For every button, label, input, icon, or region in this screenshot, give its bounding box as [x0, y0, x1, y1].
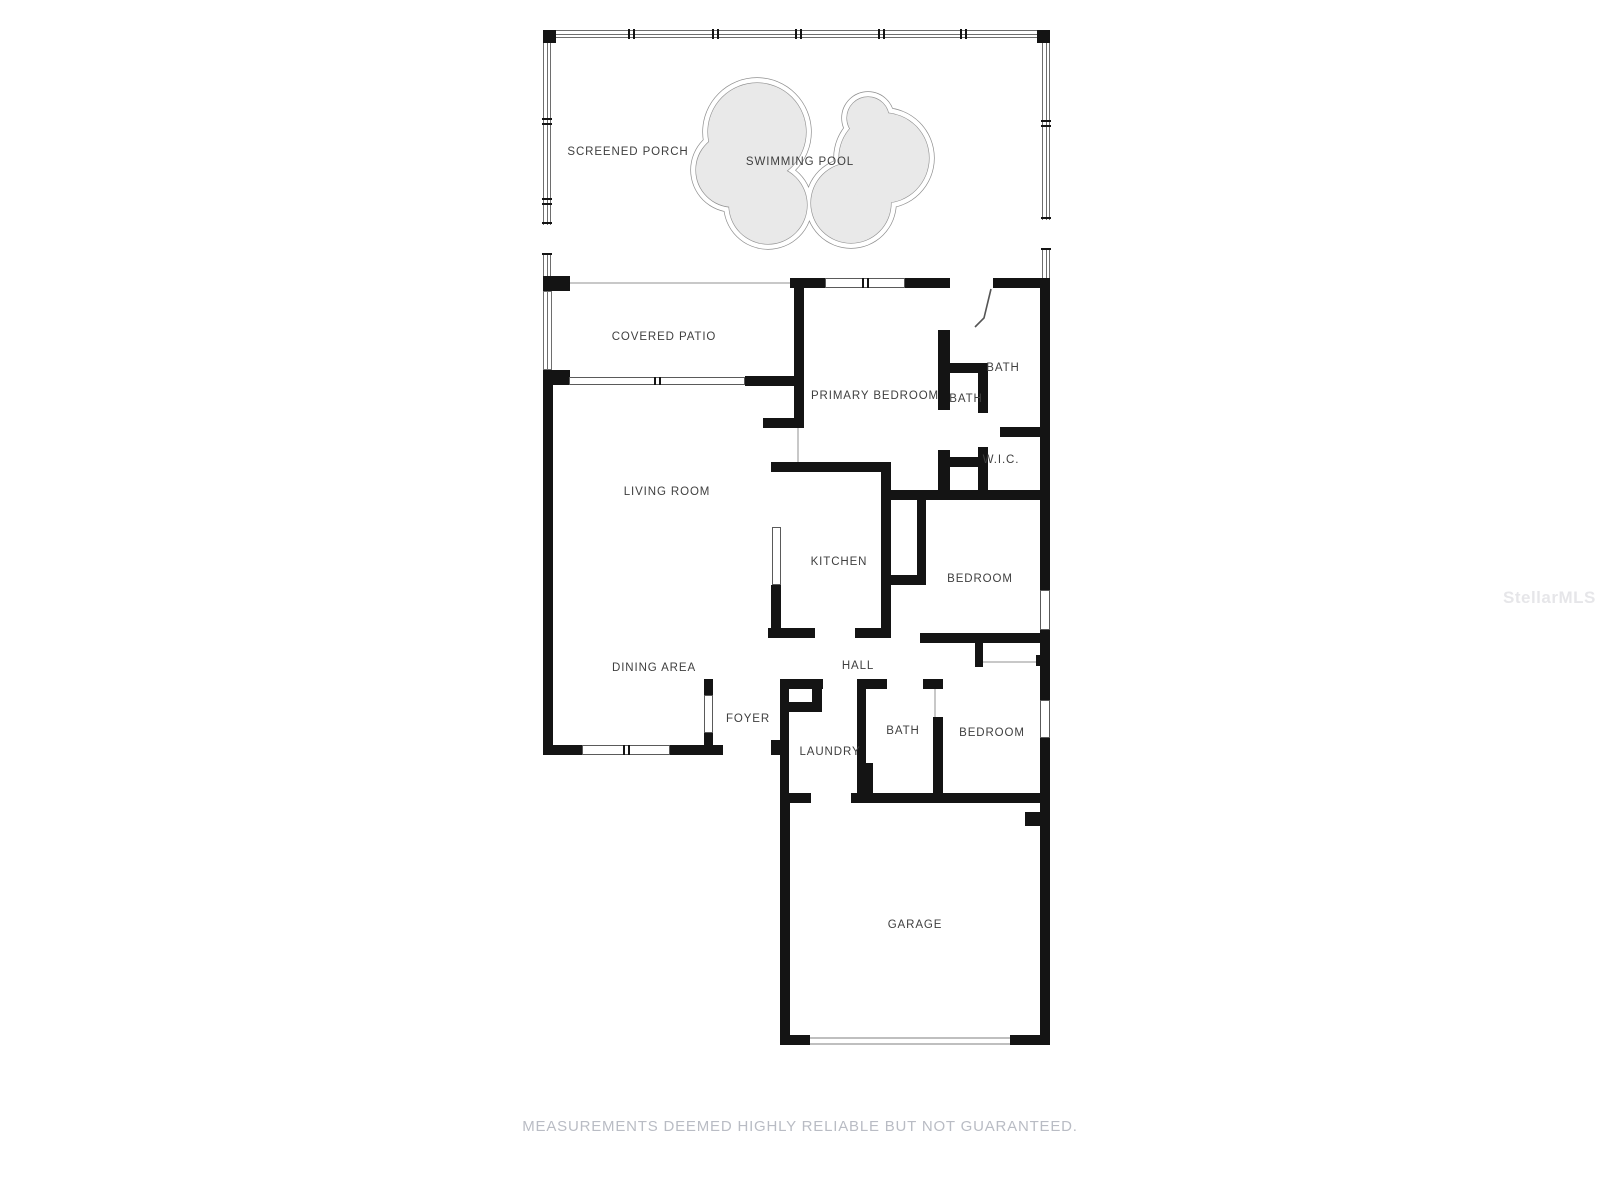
wall-segment: [938, 363, 988, 373]
screen-mullion-tick: [542, 118, 552, 120]
wall-segment: [1040, 738, 1050, 1045]
wall-segment: [891, 575, 920, 585]
wall-segment: [923, 679, 943, 689]
wall-segment: [905, 278, 950, 288]
foyer-sidelight-window: [704, 695, 713, 733]
screen-wall-left-lower: [543, 255, 551, 278]
wall-segment: [704, 733, 713, 755]
window-mullion-tick: [654, 377, 656, 385]
closet-end-post: [1036, 655, 1050, 666]
window-mullion-tick: [867, 278, 869, 288]
window-mullion-tick: [628, 745, 630, 755]
window-mullion-tick: [623, 745, 625, 755]
screen-mullion-tick: [883, 29, 885, 39]
screen-mullion-tick: [878, 29, 880, 39]
garage-interior-post: [1025, 812, 1040, 826]
patio-screen-window: [543, 291, 552, 370]
patio-slider-door: [569, 377, 745, 385]
screen-mullion-tick: [542, 222, 552, 224]
wall-segment: [857, 679, 887, 689]
screen-mullion-tick: [965, 29, 967, 39]
wall-segment: [938, 457, 985, 467]
room-label-screened-porch: SCREENED PORCH: [567, 146, 688, 158]
wall-segment: [851, 793, 1050, 803]
wall-segment: [857, 763, 873, 793]
room-label-foyer: FOYER: [726, 713, 770, 725]
wall-segment: [1010, 1035, 1050, 1045]
screen-mullion-tick: [800, 29, 802, 39]
wall-segment: [768, 628, 815, 638]
window: [1040, 700, 1050, 738]
wall-segment: [881, 472, 891, 638]
room-label-hall: HALL: [842, 660, 874, 672]
stellar-mls-watermark: StellarMLS: [1503, 588, 1596, 608]
wall-segment: [975, 637, 983, 667]
wall-segment: [794, 288, 804, 418]
room-label-kitchen: KITCHEN: [811, 556, 868, 568]
room-label-dining-area: DINING AREA: [612, 662, 696, 674]
screen-mullion-tick: [712, 29, 714, 39]
disclaimer-text: MEASUREMENTS DEEMED HIGHLY RELIABLE BUT …: [522, 1118, 1078, 1135]
screen-mullion-tick: [542, 198, 552, 200]
wall-segment: [704, 679, 713, 695]
room-label-wic: W.I.C.: [983, 454, 1020, 466]
wall-segment: [780, 1035, 810, 1045]
room-label-living-room: LIVING ROOM: [624, 486, 711, 498]
floor-plan-canvas: SCREENED PORCH SWIMMING POOL COVERED PAT…: [0, 0, 1600, 1200]
screen-wall-right-upper: [1042, 38, 1050, 220]
plan-lines-layer: [0, 0, 1600, 1200]
screen-mullion-tick: [795, 29, 797, 39]
screen-mullion-tick: [1041, 217, 1051, 219]
screen-mullion-tick: [1041, 125, 1051, 127]
window-mullion-tick: [862, 278, 864, 288]
wall-segment: [745, 376, 800, 386]
room-label-garage: GARAGE: [888, 919, 943, 931]
screen-wall-right-lower: [1042, 250, 1050, 278]
room-label-swimming-pool: SWIMMING POOL: [746, 156, 854, 168]
wall-segment: [780, 793, 790, 1045]
screen-mullion-tick: [1041, 120, 1051, 122]
porch-corner-post: [543, 30, 556, 43]
wall-segment: [917, 500, 926, 585]
wall-segment: [1000, 427, 1040, 437]
wall-segment: [771, 462, 891, 472]
screen-mullion-tick: [960, 29, 962, 39]
wall-segment: [920, 633, 1050, 643]
window: [582, 745, 670, 755]
patio-corner-post: [543, 276, 570, 291]
wall-segment: [891, 490, 1040, 500]
room-label-bath-primary: BATH: [949, 393, 982, 405]
screen-mullion-tick: [717, 29, 719, 39]
wall-segment: [670, 745, 723, 755]
window-mullion-tick: [659, 377, 661, 385]
room-label-bedroom-middle: BEDROOM: [947, 573, 1013, 585]
wall-segment: [790, 278, 825, 288]
screen-mullion-tick: [542, 253, 552, 255]
screen-mullion-tick: [542, 203, 552, 205]
kitchen-pantry-panel: [772, 527, 781, 585]
screen-mullion-tick: [1041, 248, 1051, 250]
room-label-bedroom-lower: BEDROOM: [959, 727, 1025, 739]
wall-segment: [1040, 278, 1050, 590]
door-leaf: [975, 289, 991, 327]
wall-segment: [933, 717, 943, 793]
room-label-covered-patio: COVERED PATIO: [612, 331, 717, 343]
room-label-laundry: LAUNDRY: [799, 746, 860, 758]
window: [825, 278, 905, 288]
screen-wall-left-upper: [543, 38, 551, 225]
screen-mullion-tick: [542, 123, 552, 125]
porch-corner-post: [1037, 30, 1050, 43]
wall-segment: [783, 702, 822, 712]
wall-segment: [543, 376, 553, 755]
wall-segment: [763, 418, 804, 428]
screen-mullion-tick: [633, 29, 635, 39]
window: [1040, 590, 1050, 630]
room-label-bath-pool: BATH: [986, 362, 1019, 374]
screen-mullion-tick: [628, 29, 630, 39]
room-label-primary-bedroom: PRIMARY BEDROOM: [811, 390, 939, 402]
room-label-bath-hall: BATH: [886, 725, 919, 737]
wall-segment: [543, 745, 582, 755]
wall-segment: [938, 373, 950, 410]
